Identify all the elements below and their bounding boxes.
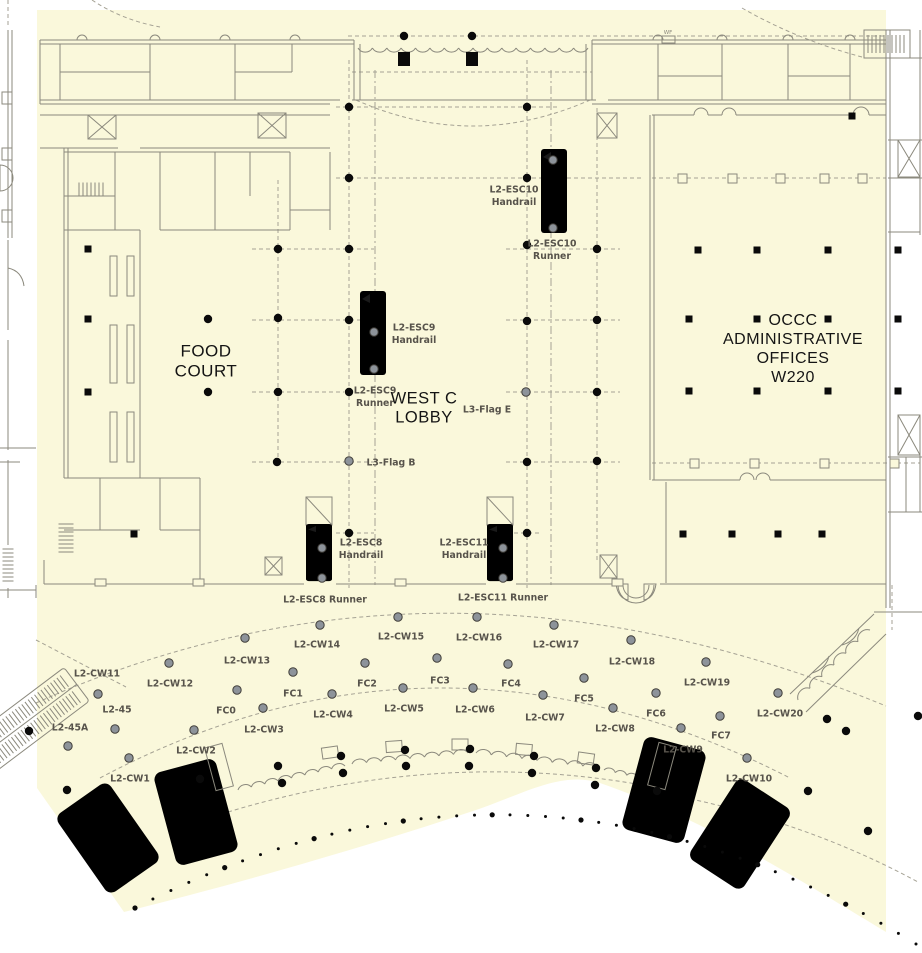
point-label-fc6: FC6 (646, 709, 666, 720)
stair-hatch (79, 183, 103, 196)
pilaster (386, 740, 403, 752)
survey-point-gray (522, 388, 530, 396)
floor-plan-page: L2-ESC10HandrailL2-ESC10RunnerL2-ESC9Han… (0, 0, 922, 953)
column-point (895, 247, 902, 254)
survey-point-black (466, 745, 474, 753)
perimeter-dot (187, 881, 190, 884)
stair-hatch (3, 549, 14, 581)
survey-point-gray (743, 754, 751, 762)
column-point (895, 388, 902, 395)
column-point (729, 531, 736, 538)
survey-point-black (523, 174, 531, 182)
point-label-l2-cw8: L2-CW8 (595, 724, 635, 735)
point-label-l3-flag-e: L3-Flag E (463, 405, 511, 416)
point-label-l2-cw19: L2-CW19 (684, 678, 730, 689)
survey-point-black (274, 245, 282, 253)
point-label-l2-cw16: L2-CW16 (456, 633, 502, 644)
point-label-l2-cw3: L2-CW3 (244, 725, 284, 736)
survey-point-black (25, 727, 33, 735)
perimeter-dot (633, 827, 636, 830)
survey-point-black (273, 458, 281, 466)
perimeter-dot (862, 912, 865, 915)
perimeter-dot (312, 836, 317, 841)
survey-point-black (593, 457, 601, 465)
column-point (695, 247, 702, 254)
survey-point-gray (125, 754, 133, 762)
point-label-l2-cw14: L2-CW14 (294, 640, 341, 651)
column-marker (728, 174, 737, 183)
survey-point-gray (318, 574, 326, 582)
room-label-west-c-lobby: LOBBY (395, 409, 453, 427)
column-marker (776, 174, 785, 183)
survey-point-black (593, 245, 601, 253)
survey-point-gray (469, 684, 477, 692)
point-label-l3-flag-b: L3-Flag B (366, 458, 415, 469)
point-label-l2-45: L2-45 (102, 705, 131, 716)
survey-point-gray (774, 689, 782, 697)
point-label-fc1: FC1 (283, 689, 303, 700)
survey-point-gray (394, 613, 402, 621)
survey-point-gray (370, 328, 378, 336)
survey-point-black (345, 103, 353, 111)
column-point (849, 113, 856, 120)
column-marker (193, 579, 204, 586)
elevator-icon (898, 415, 920, 455)
column-marker (858, 174, 867, 183)
survey-point-black (345, 316, 353, 324)
point-label-l2-45a: L2-45A (52, 723, 89, 734)
perimeter-dot (774, 870, 777, 873)
escalator-l2-esc11 (487, 524, 513, 581)
survey-point-gray (549, 156, 557, 164)
survey-point-gray (580, 674, 588, 682)
perimeter-dot (526, 814, 529, 817)
survey-point-black (274, 314, 282, 322)
column-point (819, 531, 826, 538)
point-label-l2-cw20: L2-CW20 (757, 709, 804, 720)
perimeter-dot (151, 898, 154, 901)
column-point (825, 247, 832, 254)
survey-point-black (337, 752, 345, 760)
survey-point-black (274, 762, 282, 770)
perimeter-dot (241, 859, 244, 862)
column-point-large (398, 52, 410, 66)
survey-point-gray (361, 659, 369, 667)
floor-plan-canvas: L2-ESC10HandrailL2-ESC10RunnerL2-ESC9Han… (0, 0, 922, 953)
survey-point-gray (241, 634, 249, 642)
survey-point-black (528, 769, 536, 777)
point-label-l2-cw15: L2-CW15 (378, 632, 424, 643)
column-point-large (466, 52, 478, 66)
room-label-occc-administrative-offices: ADMINISTRATIVE (723, 331, 863, 348)
survey-point-black (523, 529, 531, 537)
survey-point-gray (499, 574, 507, 582)
perimeter-dot (879, 922, 882, 925)
survey-point-gray (233, 686, 241, 694)
survey-point-black (400, 32, 408, 40)
point-label-l2-esc11-handrail: Handrail (442, 550, 487, 561)
escalator-l2-esc8 (306, 524, 332, 581)
point-label-l2-cw5: L2-CW5 (384, 704, 424, 715)
perimeter-dot (686, 840, 689, 843)
perimeter-dot (259, 853, 262, 856)
room-label-occc-administrative-offices: W220 (771, 369, 815, 386)
survey-point-black (468, 32, 476, 40)
perimeter-dot (277, 847, 280, 850)
survey-point-black (278, 779, 286, 787)
column-marker (820, 459, 829, 468)
survey-point-gray (549, 224, 557, 232)
column-point (85, 389, 92, 396)
point-label-l2-esc11-runner: L2-ESC11 Runner (458, 593, 549, 604)
perimeter-dot (384, 822, 387, 825)
survey-point-gray (716, 712, 724, 720)
survey-point-black (339, 769, 347, 777)
perimeter-dot (739, 857, 742, 860)
point-label-l2-cw18: L2-CW18 (609, 657, 655, 668)
point-label-fc7: FC7 (711, 731, 731, 742)
point-label-fc2: FC2 (357, 679, 377, 690)
perimeter-dot (348, 829, 351, 832)
perimeter-dot (509, 813, 512, 816)
survey-point-gray (318, 544, 326, 552)
survey-point-black (196, 775, 204, 783)
survey-point-gray (165, 659, 173, 667)
survey-point-gray (399, 684, 407, 692)
survey-point-black (345, 174, 353, 182)
room-label-occc-administrative-offices: OCCC (768, 312, 817, 329)
survey-point-gray (550, 621, 558, 629)
point-label-l2-esc8-handrail: L2-ESC8 (340, 537, 383, 548)
pilaster (321, 746, 338, 759)
perimeter-dot (843, 902, 848, 907)
column-marker (678, 174, 687, 183)
point-label-l2-esc10-runner: Runner (533, 251, 571, 262)
column-marker (690, 459, 699, 468)
survey-point-black (593, 316, 601, 324)
point-label-l2-esc10-handrail: Handrail (492, 197, 537, 208)
survey-point-black (345, 245, 353, 253)
point-label-l2-esc9-runner: Runner (356, 398, 394, 409)
column-point (775, 531, 782, 538)
column-point (825, 388, 832, 395)
point-label-l2-esc8-runner: L2-ESC8 Runner (283, 595, 367, 606)
room-label-occc-administrative-offices: OFFICES (757, 350, 830, 367)
point-label-l2-cw17: L2-CW17 (533, 640, 579, 651)
survey-point-gray (259, 704, 267, 712)
perimeter-dot (455, 814, 458, 817)
survey-point-gray (111, 725, 119, 733)
point-label-fc3: FC3 (430, 676, 450, 687)
column-marker (395, 579, 406, 586)
survey-point-gray (702, 658, 710, 666)
survey-point-gray (316, 621, 324, 629)
survey-point-gray (499, 544, 507, 552)
survey-point-black (914, 712, 922, 720)
column-marker (750, 459, 759, 468)
survey-point-black (523, 103, 531, 111)
column-point (686, 316, 693, 323)
perimeter-dot (420, 817, 423, 820)
survey-point-gray (64, 742, 72, 750)
survey-point-black (530, 752, 538, 760)
survey-point-gray (609, 704, 617, 712)
perimeter-dot (792, 878, 795, 881)
point-label-l2-cw9: L2-CW9 (663, 745, 703, 756)
survey-point-black (593, 388, 601, 396)
perimeter-dot (809, 886, 812, 889)
perimeter-dot (330, 833, 333, 836)
tiny-label-wf: WF (664, 30, 673, 36)
survey-point-black (204, 315, 212, 323)
column-point (754, 388, 761, 395)
survey-point-black (842, 727, 850, 735)
perimeter-dot (169, 889, 172, 892)
column-point (686, 388, 693, 395)
column-marker (820, 174, 829, 183)
survey-point-gray (433, 654, 441, 662)
survey-point-gray (328, 690, 336, 698)
survey-point-gray (370, 365, 378, 373)
column-point (754, 247, 761, 254)
column-point (895, 316, 902, 323)
survey-point-gray (652, 689, 660, 697)
column-point (680, 531, 687, 538)
point-label-l2-cw10: L2-CW10 (726, 774, 773, 785)
perimeter-dot (755, 862, 760, 867)
column-point (85, 246, 92, 253)
survey-point-gray (190, 726, 198, 734)
perimeter-dot (721, 851, 724, 854)
perimeter-dot (667, 834, 672, 839)
point-label-l2-esc10-handrail: L2-ESC10 (489, 184, 539, 195)
survey-point-black (274, 388, 282, 396)
survey-point-gray (627, 636, 635, 644)
perimeter-dot (437, 816, 440, 819)
point-label-l2-cw11: L2-CW11 (74, 669, 120, 680)
perimeter-dot (703, 845, 706, 848)
column-point (85, 316, 92, 323)
perimeter-dot (295, 842, 298, 845)
survey-point-black (592, 764, 600, 772)
point-label-l2-cw4: L2-CW4 (313, 710, 353, 721)
survey-point-gray (345, 457, 353, 465)
point-label-fc5: FC5 (574, 694, 594, 705)
column-point (754, 316, 761, 323)
column-marker (890, 459, 899, 468)
survey-point-gray (289, 668, 297, 676)
point-label-l2-cw7: L2-CW7 (525, 713, 565, 724)
perimeter-dot (490, 812, 495, 817)
point-label-l2-esc8-handrail: Handrail (339, 550, 384, 561)
point-label-fc0: FC0 (216, 706, 236, 717)
perimeter-dot (132, 905, 137, 910)
survey-point-black (345, 529, 353, 537)
point-label-l2-esc9-handrail: L2-ESC9 (393, 322, 436, 333)
survey-point-black (591, 781, 599, 789)
survey-point-black (864, 827, 872, 835)
survey-point-black (63, 786, 71, 794)
perimeter-dot (222, 865, 227, 870)
perimeter-dot (827, 894, 830, 897)
survey-point-black (401, 746, 409, 754)
room-label-west-c-lobby: WEST C (391, 389, 458, 407)
column-marker (612, 579, 623, 586)
survey-point-black (653, 787, 661, 795)
survey-point-black (402, 762, 410, 770)
survey-point-black (523, 458, 531, 466)
pilaster (452, 739, 468, 750)
perimeter-dot (562, 817, 565, 820)
survey-point-gray (94, 690, 102, 698)
perimeter-dot (205, 873, 208, 876)
perimeter-dot (897, 932, 900, 935)
perimeter-dot (650, 831, 653, 834)
perimeter-dot (597, 821, 600, 824)
room-label-food-court: COURT (175, 362, 238, 381)
perimeter-dot (915, 943, 918, 946)
point-label-fc4: FC4 (501, 679, 521, 690)
perimeter-dot (615, 824, 618, 827)
point-label-l2-cw6: L2-CW6 (455, 705, 495, 716)
survey-point-black (823, 715, 831, 723)
perimeter-dot (401, 818, 406, 823)
survey-point-black (804, 787, 812, 795)
perimeter-dot (544, 815, 547, 818)
survey-point-gray (539, 691, 547, 699)
survey-point-black (523, 317, 531, 325)
perimeter-dot (578, 817, 583, 822)
survey-point-gray (473, 613, 481, 621)
elevator-icon (898, 140, 920, 177)
column-point (131, 531, 138, 538)
point-label-l2-cw12: L2-CW12 (147, 679, 193, 690)
survey-point-black (345, 388, 353, 396)
point-label-l2-cw2: L2-CW2 (176, 746, 216, 757)
survey-point-black (465, 762, 473, 770)
point-label-l2-cw1: L2-CW1 (110, 774, 150, 785)
point-label-l2-esc10-runner: L2-ESC10 (527, 238, 577, 249)
survey-point-gray (504, 660, 512, 668)
perimeter-dot (366, 825, 369, 828)
column-point (825, 316, 832, 323)
point-label-l2-esc11-handrail: L2-ESC11 (439, 537, 488, 548)
point-label-l2-esc9-handrail: Handrail (392, 335, 437, 346)
point-label-l2-cw13: L2-CW13 (224, 656, 270, 667)
column-marker (95, 579, 106, 586)
survey-point-gray (677, 724, 685, 732)
room-label-food-court: FOOD (180, 341, 231, 360)
perimeter-dot (473, 814, 476, 817)
survey-point-black (204, 388, 212, 396)
